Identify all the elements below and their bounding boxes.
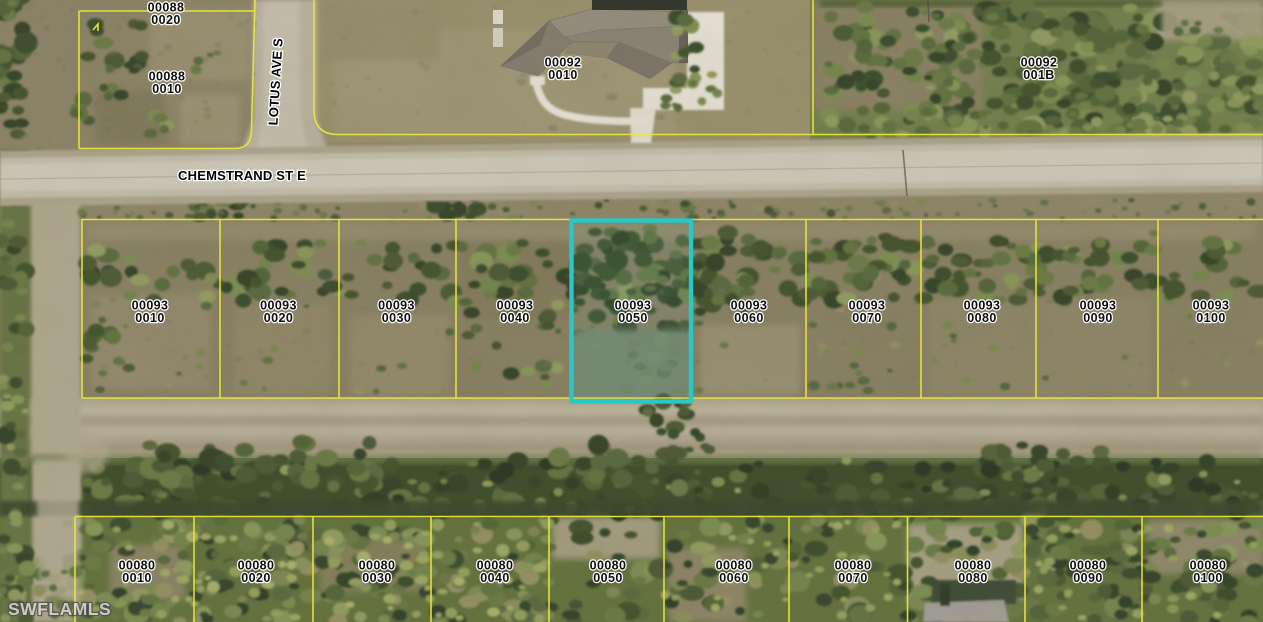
svg-text:0020: 0020 [241,571,270,585]
svg-text:0060: 0060 [734,311,763,325]
svg-text:0070: 0070 [838,571,867,585]
svg-text:0080: 0080 [967,311,996,325]
svg-text:0090: 0090 [1073,571,1102,585]
svg-text:0010: 0010 [152,82,181,96]
svg-text:0010: 0010 [135,311,164,325]
svg-text:0050: 0050 [593,571,622,585]
svg-text:0010: 0010 [548,68,577,82]
svg-text:0100: 0100 [1196,311,1225,325]
svg-text:0010: 0010 [122,571,151,585]
svg-text:0070: 0070 [852,311,881,325]
svg-text:0060: 0060 [719,571,748,585]
svg-text:0090: 0090 [1083,311,1112,325]
svg-text:001B: 001B [1023,68,1054,82]
svg-text:0030: 0030 [382,311,411,325]
svg-text:0080: 0080 [958,571,987,585]
svg-text:CHEMSTRAND ST E: CHEMSTRAND ST E [178,168,306,183]
svg-text:0040: 0040 [500,311,529,325]
svg-text:0040: 0040 [480,571,509,585]
svg-text:0030: 0030 [362,571,391,585]
svg-text:0020: 0020 [151,13,180,27]
svg-text:0100: 0100 [1193,571,1222,585]
svg-text:SWFLAMLS: SWFLAMLS [8,599,111,619]
svg-text:0050: 0050 [618,311,647,325]
svg-text:0020: 0020 [264,311,293,325]
